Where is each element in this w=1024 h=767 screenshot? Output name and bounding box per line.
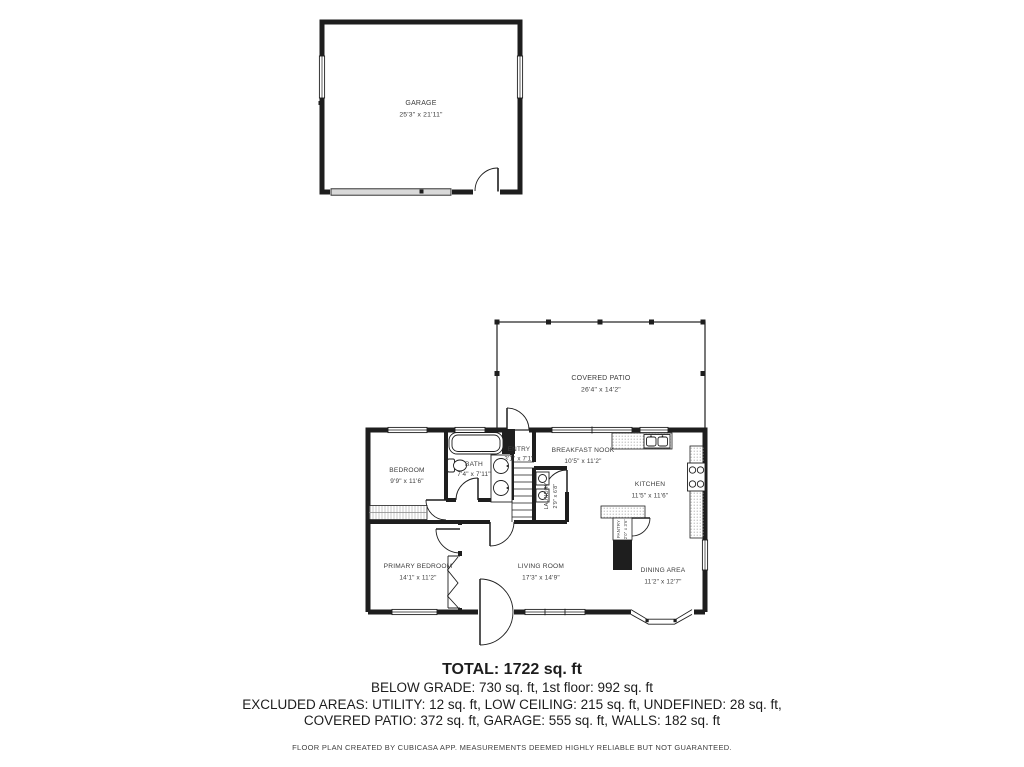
primary-bedroom-window — [392, 609, 437, 614]
garage-label: GARAGE — [405, 100, 436, 107]
total-area-text: TOTAL: 1722 sq. ft — [0, 661, 1024, 679]
entry-label: ENTRY — [508, 446, 531, 453]
bath-dims: 7'4" x 7'11" — [457, 471, 490, 478]
bathtub-icon — [449, 433, 503, 455]
covered-patio: COVERED PATIO 26'4" x 14'2" — [495, 320, 706, 431]
stove-icon — [688, 463, 706, 491]
primary-bedroom-dims: 14'1" x 11'2" — [399, 575, 436, 582]
kitchen-window — [640, 427, 668, 432]
garage-window-right — [517, 56, 522, 98]
bedroom-closet — [369, 506, 427, 520]
entry-dims: 3'1" x 7'1" — [504, 456, 533, 463]
patio-posts — [495, 320, 706, 377]
hall-living-door-icon — [490, 522, 514, 546]
floors-area-text: BELOW GRADE: 730 sq. ft, 1st floor: 992 … — [0, 680, 1024, 697]
primary-bedroom-label: PRIMARY BEDROOM — [384, 563, 453, 570]
garage-window-left — [319, 56, 324, 98]
breakfast-nook-dims: 10'5" x 11'2" — [564, 458, 601, 465]
garage-plan: GARAGE 25'3" x 21'11" — [319, 20, 523, 197]
bath-label: BATH — [465, 461, 483, 468]
floor-plan-page: GARAGE 25'3" x 21'11" COVERED PATIO 26'4… — [0, 0, 1024, 767]
first-floor-plan: BEDROOM 9'9" x 11'6" BATH 7'4" x 7'11" E… — [368, 408, 708, 645]
bath-door-icon — [456, 478, 478, 500]
breakfast-nook-label: BREAKFAST NOOK — [552, 447, 615, 454]
windows — [388, 427, 708, 625]
interior-walls — [368, 430, 567, 612]
bedroom-window — [388, 427, 427, 432]
pantry-dining-door-icon — [632, 518, 650, 536]
laundry-label: LAUNDRY — [544, 482, 550, 509]
kitchen-sink-icon — [644, 435, 670, 449]
covered-patio-dims: 26'4" x 14'2" — [581, 387, 621, 394]
bath-window — [455, 427, 485, 432]
excluded-areas-text-2: COVERED PATIO: 372 sq. ft, GARAGE: 555 s… — [0, 713, 1024, 730]
kitchen-cabinet-row — [601, 506, 645, 518]
area-summary: TOTAL: 1722 sq. ft BELOW GRADE: 730 sq. … — [0, 661, 1024, 759]
excluded-areas-text-1: EXCLUDED AREAS: UTILITY: 12 sq. ft, LOW … — [0, 697, 1024, 714]
kitchen-dims: 11'5" x 11'6" — [632, 493, 669, 500]
bedroom-label: BEDROOM — [389, 467, 424, 474]
living-room-dims: 17'3" x 14'9" — [522, 575, 560, 582]
primary-bedroom-door-icon — [436, 529, 460, 553]
floor-plan-drawing: GARAGE 25'3" x 21'11" COVERED PATIO 26'4… — [0, 0, 1024, 660]
bedroom-door-icon — [426, 500, 446, 520]
kitchen-counter-right — [690, 446, 705, 538]
bedroom-dims: 9'9" x 11'6" — [390, 478, 423, 485]
bay-window — [631, 610, 692, 625]
kitchen-label: KITCHEN — [635, 481, 665, 488]
pantry-label: PANTRY — [616, 520, 621, 538]
living-room-window — [525, 609, 585, 615]
patio-entry-door-icon — [507, 408, 529, 430]
dining-area-dims: 11'2" x 12'7" — [644, 579, 681, 586]
pantry-dims: 2'0" x 3'6" — [623, 518, 628, 539]
dining-area-label: DINING AREA — [641, 567, 686, 574]
cubicasa-disclaimer: FLOOR PLAN CREATED BY CUBICASA APP. MEAS… — [0, 743, 1024, 752]
laundry-dims: 2'9" x 6'8" — [553, 484, 559, 509]
front-door-icon — [480, 579, 513, 645]
stairs — [512, 462, 534, 522]
garage-door — [330, 188, 452, 197]
garage-entry-door-icon — [473, 168, 500, 197]
garage-dims: 25'3" x 21'11" — [399, 112, 443, 119]
covered-patio-label: COVERED PATIO — [571, 375, 630, 382]
dining-side-window — [702, 540, 707, 570]
nook-sliding-window — [552, 427, 632, 434]
living-room-label: LIVING ROOM — [518, 563, 564, 570]
garage-walls — [322, 22, 520, 192]
chimney-block — [613, 540, 632, 570]
